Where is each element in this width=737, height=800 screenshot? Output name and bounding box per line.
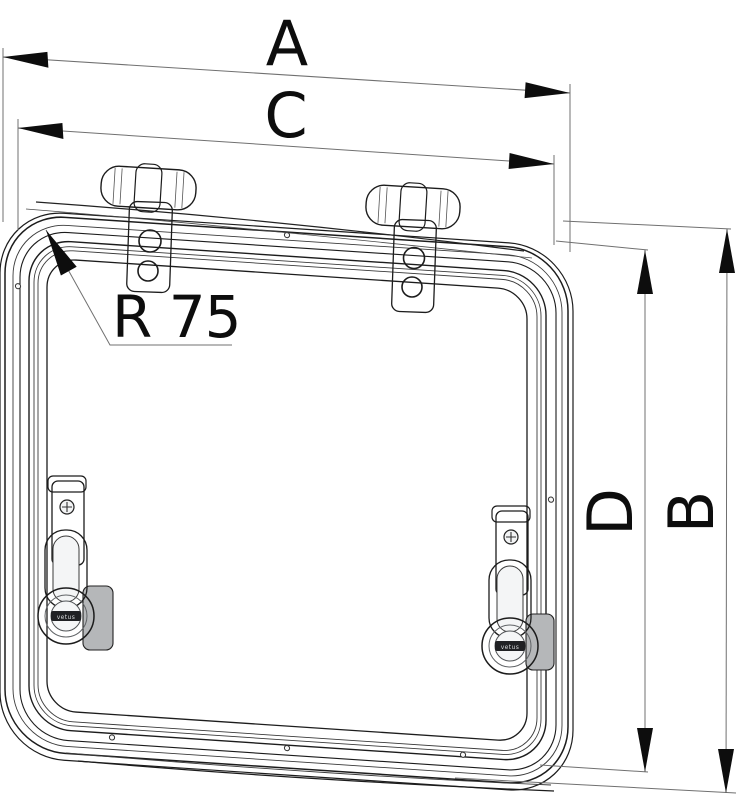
latch-brand-text: vetus xyxy=(501,644,520,651)
latch-left: vetus xyxy=(38,476,113,650)
dim-a-arrow-right xyxy=(525,82,570,98)
dim-c-label: C xyxy=(264,79,307,152)
frame-flange xyxy=(5,213,568,786)
radius-arrow xyxy=(46,230,77,276)
dim-b-arrow-bottom xyxy=(718,749,734,793)
dim-b-label: B xyxy=(655,491,728,534)
dim-b-extension-top xyxy=(563,221,731,229)
hinge-hole xyxy=(404,248,425,269)
dim-b-arrow-top xyxy=(719,229,735,273)
lid-rim-line-1 xyxy=(34,244,541,757)
dim-d-extension-bottom xyxy=(540,765,648,772)
hinge-barrel-seams xyxy=(378,187,448,227)
hinge-hole xyxy=(138,261,158,281)
dim-d-label: D xyxy=(574,488,647,536)
hatch-dimension-diagram: vetus vetus A C D xyxy=(0,0,737,800)
dim-c-arrow-left xyxy=(18,123,63,139)
lid-rim-outer xyxy=(29,239,546,762)
latch-stirrup-inner xyxy=(53,536,79,602)
hinge-barrel xyxy=(100,165,197,211)
latch-stirrup-inner xyxy=(497,566,523,632)
latch-handle-cap xyxy=(492,506,530,522)
hinge-clamp xyxy=(134,163,163,212)
screw-dot xyxy=(284,745,289,751)
dim-b-extension-bottom xyxy=(455,778,736,793)
dim-a-label: A xyxy=(266,7,308,80)
latch-brand-text: vetus xyxy=(57,614,76,621)
hinge-hole xyxy=(402,277,422,297)
flange-inner-line-1 xyxy=(13,222,562,780)
screw-dot xyxy=(460,752,465,758)
dim-c-arrow-right xyxy=(509,153,554,169)
screw-dot xyxy=(548,497,553,503)
radius-label: R 75 xyxy=(112,283,241,351)
technical-drawing-page: vetus vetus A C D xyxy=(0,0,737,800)
latch-handle-cap xyxy=(48,476,86,492)
frame-outer-edge xyxy=(0,209,573,794)
screw-dot xyxy=(15,283,20,289)
hinge-left xyxy=(100,161,198,293)
radius-annotation: R 75 xyxy=(46,230,241,351)
hatch-frame xyxy=(0,209,573,794)
flange-inner-line-2 xyxy=(20,229,556,773)
screw-dot xyxy=(109,735,114,741)
dim-d-arrow-top xyxy=(637,250,653,294)
frame-edge-lines xyxy=(26,202,554,791)
hinge-clamp xyxy=(399,182,428,231)
latch-mount xyxy=(83,586,113,650)
screw-dots xyxy=(15,214,553,769)
latch-right: vetus xyxy=(482,506,554,674)
dim-d-arrow-bottom xyxy=(637,728,653,772)
dim-a-arrow-left xyxy=(3,52,48,68)
hinge-hole xyxy=(139,230,161,252)
dimension-d: D xyxy=(540,241,653,772)
